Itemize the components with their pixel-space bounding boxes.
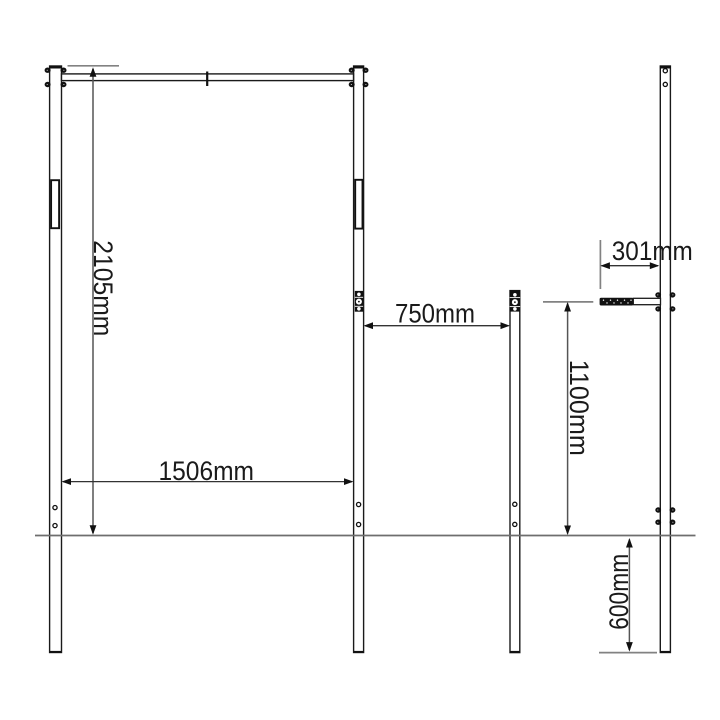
svg-text:750mm: 750mm (395, 299, 475, 329)
svg-text:301mm: 301mm (612, 236, 693, 266)
svg-text:600mm: 600mm (604, 554, 634, 630)
svg-text:1506mm: 1506mm (159, 456, 255, 486)
svg-text:2105mm: 2105mm (88, 240, 118, 336)
svg-text:1100mm: 1100mm (564, 360, 594, 456)
